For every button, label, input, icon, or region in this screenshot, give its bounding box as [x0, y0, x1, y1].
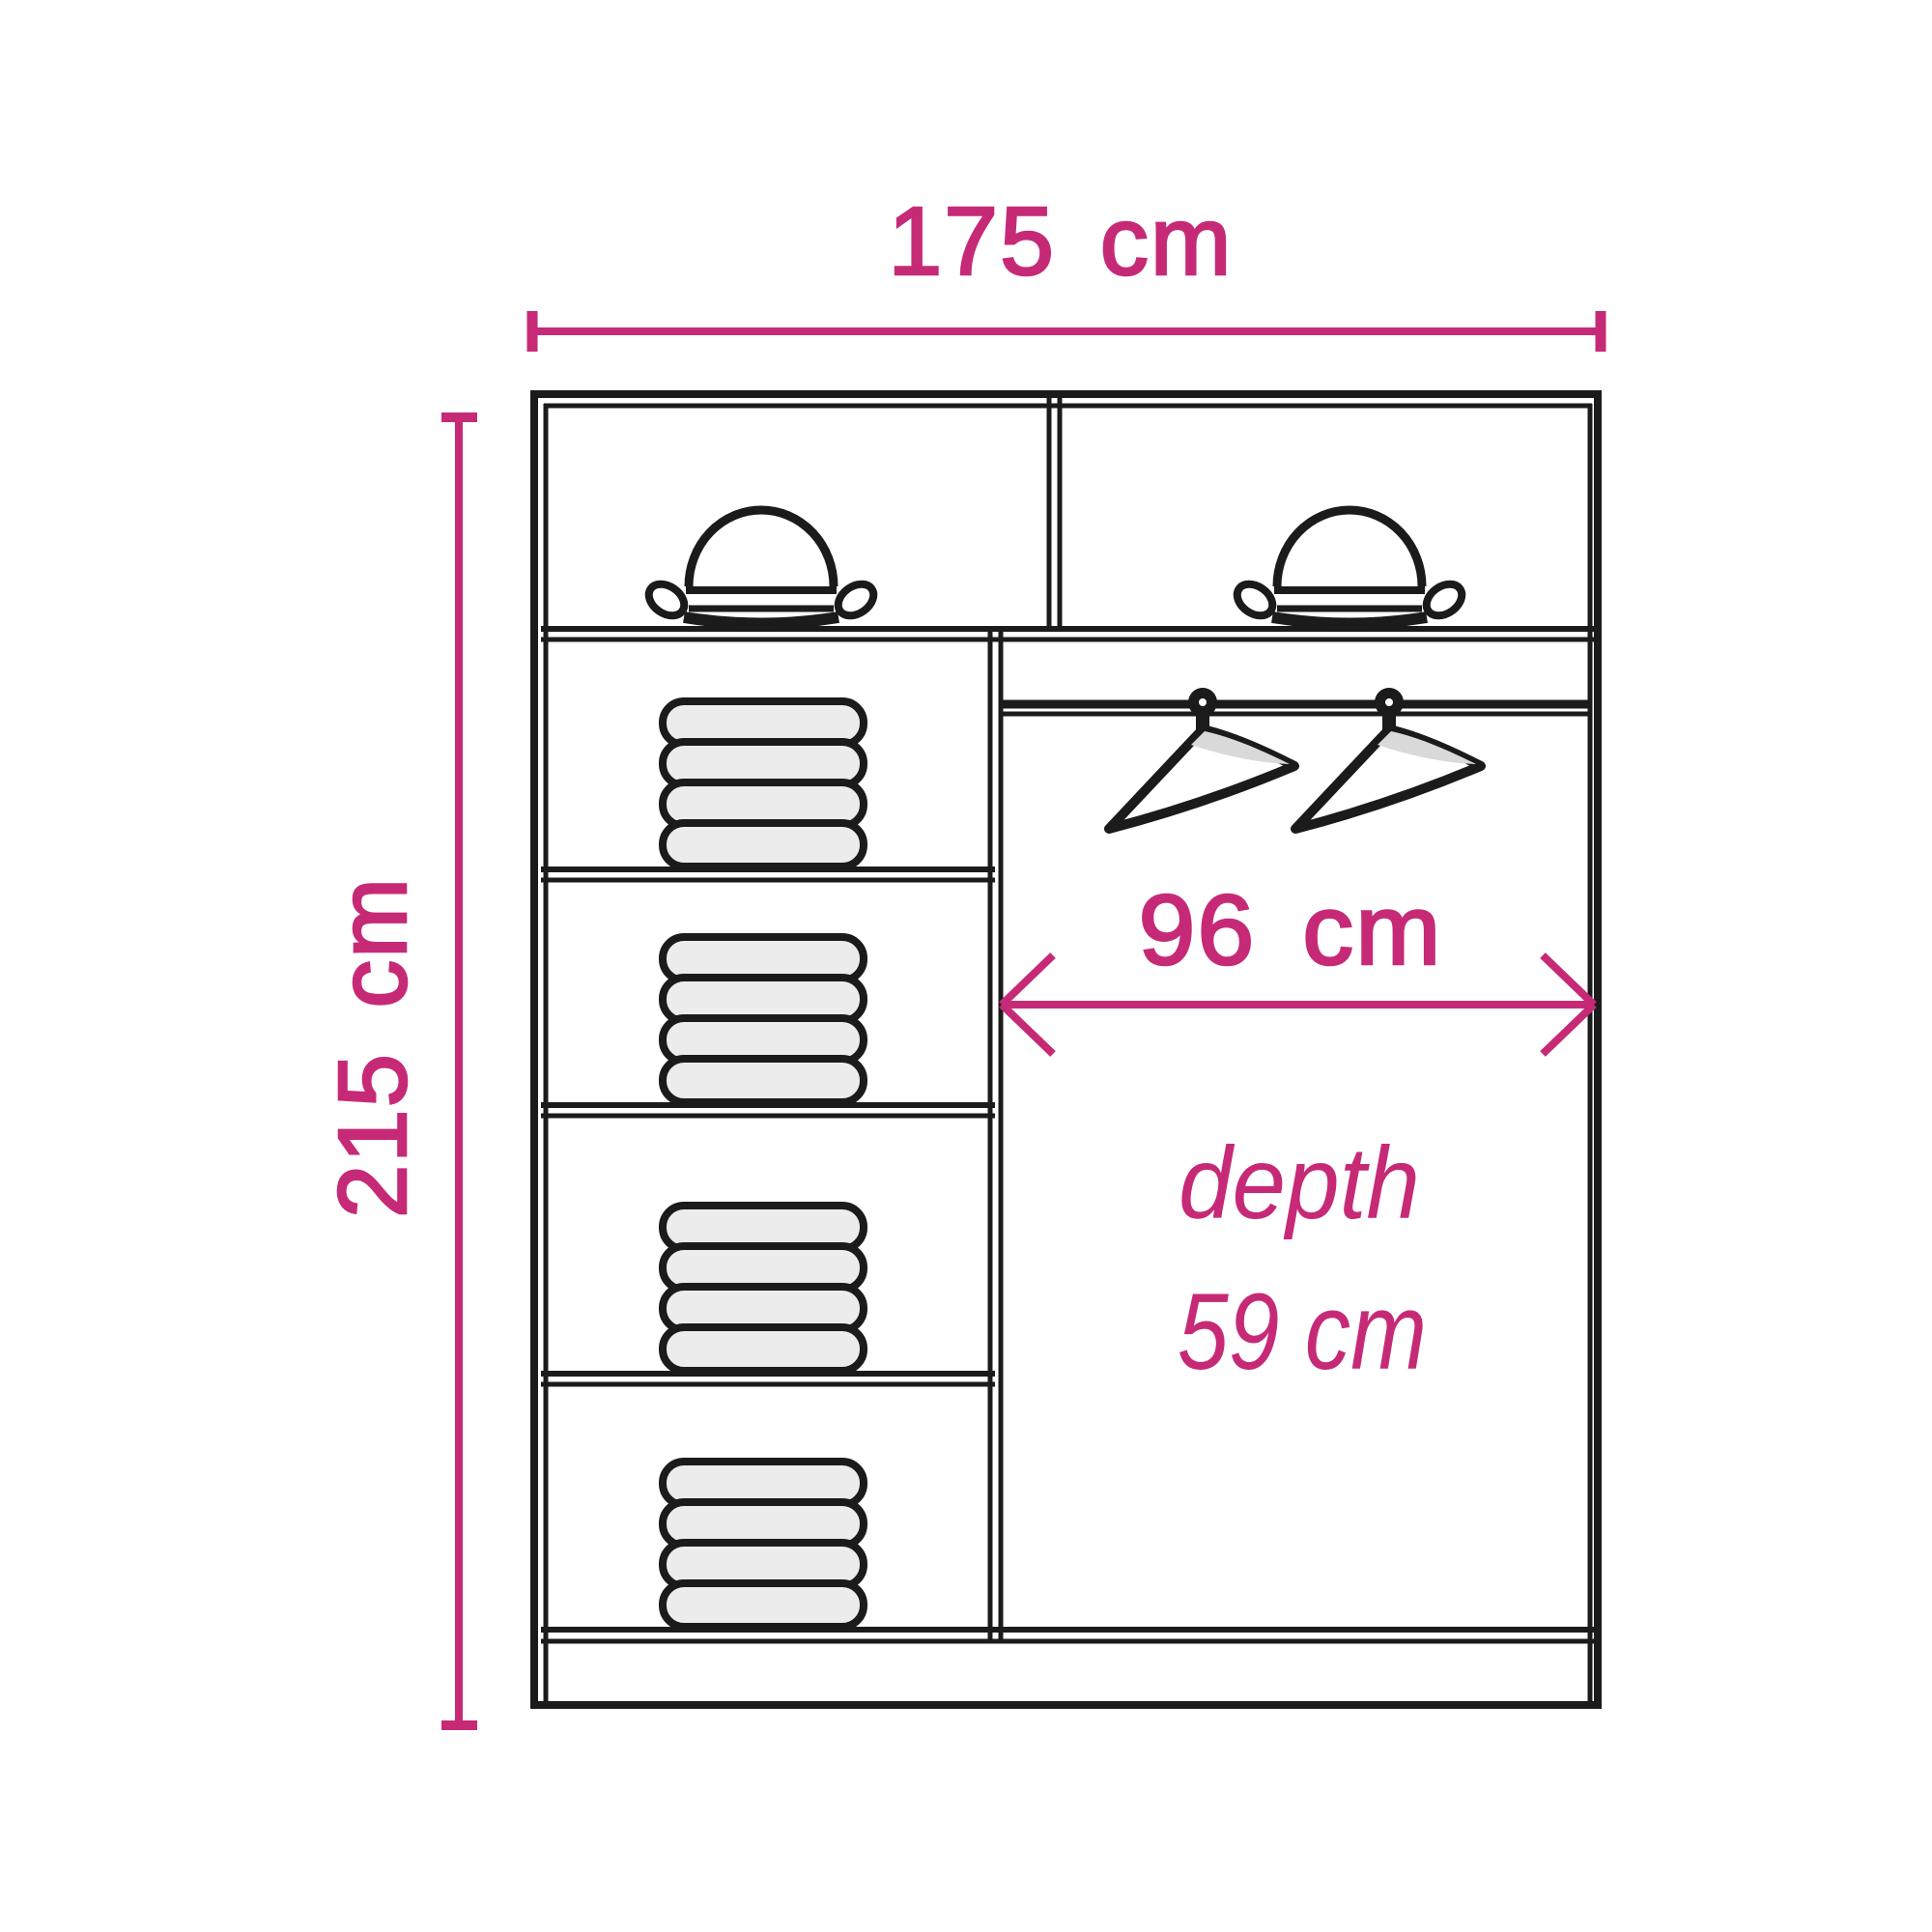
svg-text:59 cm: 59 cm [1178, 1271, 1427, 1392]
svg-text:depth: depth [1179, 1126, 1420, 1240]
svg-text:215 cm: 215 cm [319, 876, 427, 1218]
svg-text:96 cm: 96 cm [1139, 874, 1443, 985]
svg-text:175 cm: 175 cm [889, 187, 1234, 296]
